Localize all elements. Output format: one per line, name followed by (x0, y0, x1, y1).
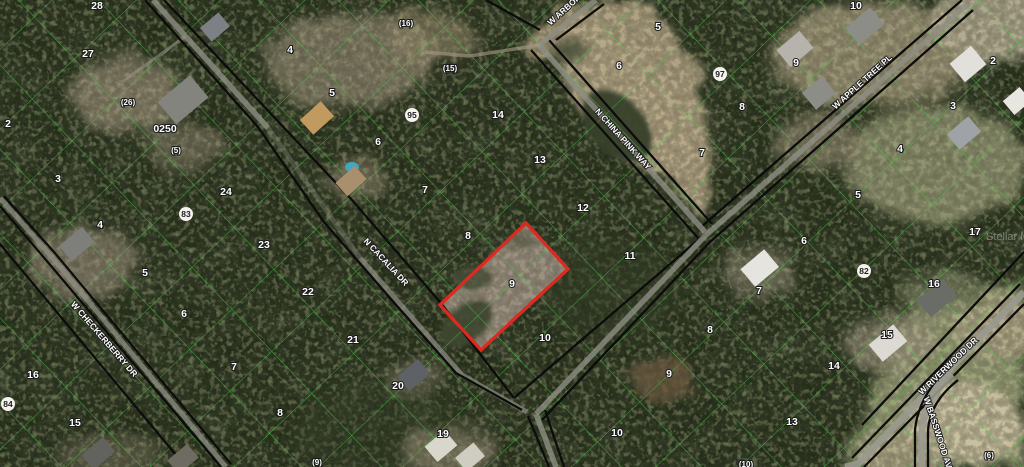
svg-text:7: 7 (231, 361, 237, 373)
svg-text:(9): (9) (312, 458, 322, 467)
svg-text:14: 14 (828, 360, 840, 372)
svg-text:22: 22 (302, 286, 314, 298)
svg-text:5: 5 (142, 267, 148, 279)
svg-text:2: 2 (5, 118, 11, 130)
svg-text:8: 8 (707, 324, 713, 336)
svg-text:17: 17 (969, 226, 981, 238)
svg-text:13: 13 (786, 416, 798, 428)
svg-text:3: 3 (950, 100, 956, 112)
svg-text:8: 8 (465, 230, 471, 242)
svg-text:3: 3 (55, 173, 61, 185)
svg-text:83: 83 (181, 209, 191, 219)
svg-text:(26): (26) (121, 98, 136, 107)
svg-text:10: 10 (611, 427, 623, 439)
svg-text:19: 19 (437, 428, 449, 440)
svg-text:23: 23 (258, 239, 270, 251)
svg-text:5: 5 (329, 87, 335, 99)
svg-text:10: 10 (539, 332, 551, 344)
svg-text:7: 7 (699, 147, 705, 159)
svg-text:6: 6 (801, 235, 807, 247)
svg-text:2: 2 (990, 55, 996, 67)
svg-text:27: 27 (82, 48, 94, 60)
svg-text:16: 16 (27, 369, 39, 381)
svg-text:5: 5 (855, 189, 861, 201)
svg-text:(15): (15) (443, 64, 458, 73)
svg-text:4: 4 (897, 143, 903, 155)
svg-text:(10): (10) (739, 460, 754, 467)
svg-text:(5): (5) (171, 146, 181, 155)
svg-text:Stellar M: Stellar M (986, 231, 1024, 243)
svg-text:12: 12 (577, 202, 589, 214)
svg-text:95: 95 (407, 110, 417, 120)
svg-text:(16): (16) (399, 19, 414, 28)
svg-text:11: 11 (624, 250, 635, 262)
svg-text:5: 5 (655, 21, 661, 33)
svg-text:7: 7 (422, 184, 428, 196)
svg-text:15: 15 (881, 329, 893, 341)
svg-text:82: 82 (859, 266, 869, 276)
svg-text:6: 6 (181, 308, 187, 320)
svg-text:24: 24 (220, 186, 232, 198)
svg-text:14: 14 (492, 109, 504, 121)
svg-text:4: 4 (97, 219, 103, 231)
svg-text:6: 6 (375, 136, 381, 148)
svg-text:21: 21 (347, 334, 359, 346)
svg-text:16: 16 (928, 278, 940, 290)
svg-text:8: 8 (277, 407, 283, 419)
svg-text:9: 9 (793, 57, 799, 69)
svg-text:97: 97 (715, 69, 725, 79)
svg-text:7: 7 (756, 285, 762, 297)
svg-text:9: 9 (666, 368, 672, 380)
svg-text:84: 84 (3, 399, 13, 409)
svg-text:8: 8 (739, 101, 745, 113)
svg-text:15: 15 (69, 417, 81, 429)
svg-text:10: 10 (850, 0, 862, 12)
svg-text:13: 13 (534, 154, 546, 166)
svg-text:20: 20 (392, 380, 404, 392)
svg-text:28: 28 (91, 0, 103, 12)
svg-text:4: 4 (287, 44, 293, 56)
svg-text:(6): (6) (984, 451, 994, 460)
svg-text:6: 6 (616, 60, 622, 72)
svg-text:0250: 0250 (153, 123, 177, 135)
svg-text:9: 9 (509, 278, 515, 290)
